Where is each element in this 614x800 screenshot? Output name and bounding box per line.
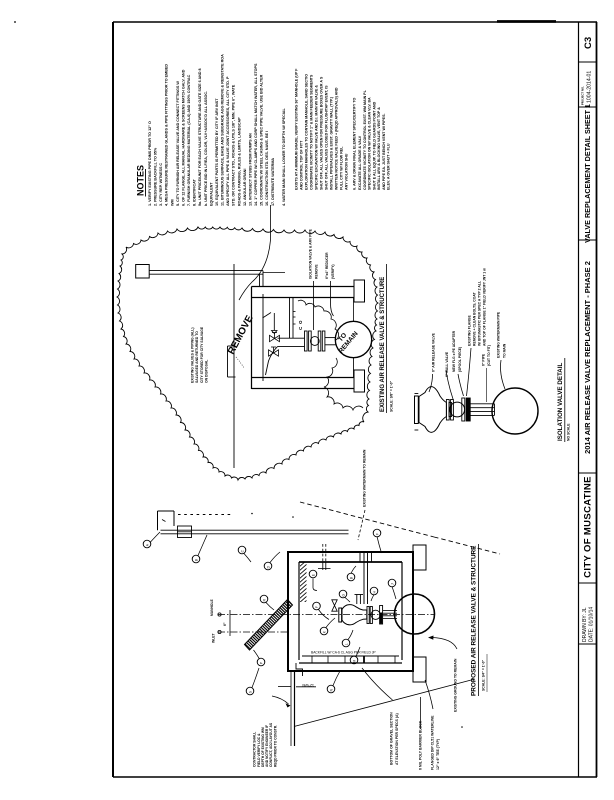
svg-text:F: F (375, 533, 379, 535)
svg-text:SHUT OFF, ALL VALVES CLOSED FO: SHUT OFF, ALL VALVES CLOSED FOR FLUSH/TA… (325, 85, 329, 190)
svg-text:TO MAIN: TO MAIN (503, 343, 507, 358)
svg-text:BOTTOM OF GRAVEL SECTION: BOTTOM OF GRAVEL SECTION (390, 712, 394, 765)
svg-text:11. BITUMINOUS SURFACE, BASE: 11. BITUMINOUS SURFACE, BASE AND SUBGRAD… (221, 54, 225, 206)
svg-text:J: J (390, 583, 394, 585)
svg-text:DATE: 01/10/14: DATE: 01/10/14 (588, 607, 594, 642)
svg-text:12" x 6" TEE (TYP): 12" x 6" TEE (TYP) (436, 739, 440, 770)
svg-text:(VERIFY): (VERIFY) (331, 264, 335, 279)
svg-text:2014 AIR RELEASE VALVE REPLACE: 2014 AIR RELEASE VALVE REPLACEMENT - PHA… (583, 261, 592, 454)
svg-text:C3: C3 (583, 37, 594, 49)
svg-text:INLET: INLET (212, 633, 216, 643)
svg-text:6" AIR RELEASE VALVE: 6" AIR RELEASE VALVE (432, 332, 436, 372)
svg-text:12"WM: 12"WM (302, 683, 314, 687)
svg-text:MANHOLE: MANHOLE (210, 599, 214, 616)
svg-text:P: P (259, 662, 263, 664)
svg-text:REMOVE + CLEAN BOLTS, COAT: REMOVE + CLEAN BOLTS, COAT (473, 291, 477, 346)
svg-text:6"x4" REDUCER: 6"x4" REDUCER (325, 252, 329, 279)
svg-text:C: C (298, 326, 303, 330)
svg-text:NOTES: NOTES (136, 165, 146, 196)
svg-text:(CUT TO FIT): (CUT TO FIT) (487, 345, 491, 366)
svg-text:NEW FLG x PE ADAPTER: NEW FLG x PE ADAPTER (452, 330, 456, 372)
svg-text:SHUT OFF, ALL VALVES OPEN FOR: SHUT OFF, ALL VALVES OPEN FOR PRESSURE B… (320, 76, 324, 190)
svg-text:EXPLORATION MANHOLES TO CONTAI: EXPLORATION MANHOLES TO CONTAIN MANHOLE,… (305, 74, 309, 190)
svg-text:b. UNIT PRICE BID IN LF/EA, C: b. UNIT PRICE BID IN LF/EA, COLOR, VLV+A… (204, 91, 208, 206)
svg-text:L: L (344, 643, 348, 645)
svg-text:SALVAGED AND RETURNED TO: SALVAGED AND RETURNED TO (195, 331, 199, 383)
svg-text:3. CITY REP. WITNESS C: 3. CITY REP. WITNESS C (159, 163, 163, 206)
svg-text:B: B (349, 577, 353, 579)
svg-text:REQD PRIOR TO CONSTR.: REQD PRIOR TO CONSTR. (273, 725, 277, 767)
svg-text:C: C (240, 549, 244, 552)
svg-text:COORDINATE VICINITY TO NOTIFY: COORDINATE VICINITY TO NOTIFY 1" & MAIN … (310, 74, 314, 190)
svg-text:WRITTEN NOTICE VALVE FEED + (R: WRITTEN NOTICE VALVE FEED + (REQD APPROV… (335, 87, 339, 190)
svg-text:6": 6" (223, 622, 227, 626)
svg-text:INSTALL ARV & BLOCKING VALVE,: INSTALL ARV & BLOCKING VALVE, VENT TOP & (377, 107, 381, 190)
svg-text:6. ARV & DRAIN FINAL ELEMENT: 6. ARV & DRAIN FINAL ELEMENT SPEC/CERTIF… (353, 97, 357, 190)
svg-text:H: H (372, 590, 376, 593)
svg-text:PROPOSED AIR RELEASE VALVE & S: PROPOSED AIR RELEASE VALVE & STRUCTURE (471, 545, 478, 696)
svg-text:SPECIFIC EXCAVATION W/ VALVE A: SPECIFIC EXCAVATION W/ VALVE AND D.I. MA… (315, 85, 319, 190)
svg-text:16. CONSTRUCTION STD. DES. NA: 16. CONSTRUCTION STD. DES. NAVE. BE I (265, 131, 269, 206)
svg-text:NO SCALE: NO SCALE (567, 423, 571, 441)
svg-text:D: D (266, 565, 270, 568)
svg-text:ON DISPOSAL: ON DISPOSAL (205, 360, 209, 383)
svg-text:4. MEGA PRESSURE RESTRAINED G: 4. MEGA PRESSURE RESTRAINED GLANDS & PIP… (165, 64, 169, 206)
svg-text:ISOLATION VALVE DETAIL: ISOLATION VALVE DETAIL (557, 363, 564, 441)
svg-text:INSTALL PIPE/VALVES & EXIST. G: INSTALL PIPE/VALVES & EXIST. GRAVITY WAL… (330, 96, 334, 190)
svg-text:8. IDENTIFICAT: 8. IDENTIFICAT (193, 178, 197, 206)
svg-text:STD. OR CONTRACT STD., ROADS &: STD. OR CONTRACT STD., ROADS & UTILS 1/8… (232, 84, 236, 206)
svg-text:9a. UNIT PRICE/UNIT FOR EACH: 9a. UNIT PRICE/UNIT FOR EACH VALVE STRUC… (198, 68, 202, 206)
svg-text:EXISTING FLANGE: EXISTING FLANGE (468, 315, 472, 346)
svg-text:13. INTERSECT STUBS FROM PUMP: 13. INTERSECT STUBS FROM PUMPS AN (248, 133, 252, 206)
svg-text:10. EQUIVALENT PARTS IS PERMI: 10. EQUIVALENT PARTS IS PERMITTED BY CIT… (215, 98, 219, 206)
svg-text:SCALE: 3/4" = 1'-0": SCALE: 3/4" = 1'-0" (482, 660, 486, 691)
svg-text:EXISTS AT A MINIMUM GRADE, VER: EXISTS AT A MINIMUM GRADE, VERIFY EXISTI… (295, 68, 299, 190)
svg-text:O: O (298, 320, 303, 324)
svg-text:BACKFILL W/ CA-6 CL AGG PER FI: BACKFILL W/ CA-6 CL AGG PER FIELD JP (311, 651, 376, 655)
svg-text:AND CONTROL TOP OF FITT: AND CONTROL TOP OF FITT (300, 140, 304, 190)
svg-text:EXISTING WATERMAIN PIPE: EXISTING WATERMAIN PIPE (497, 311, 501, 358)
svg-text:VALVE REPLACEMENT DETAIL SHEET: VALVE REPLACEMENT DETAIL SHEET 1 (583, 104, 592, 243)
svg-text:REMOVE: REMOVE (315, 264, 319, 279)
svg-text:B: B (194, 559, 198, 561)
svg-text:PROJECT NO.: PROJECT NO. (581, 86, 585, 105)
svg-text:15. COORDINATE W/ STEEL CASIN: 15. COORDINATE W/ STEEL CASING & SPEC PI… (260, 74, 264, 206)
svg-text:F: F (315, 606, 319, 608)
svg-text:12. ANGULAR GRANI: 12. ANGULAR GRANI (243, 169, 247, 206)
svg-text:4. WATER MAIN SHALL LOWER TO: 4. WATER MAIN SHALL LOWER TO DEPTH W/ SP… (282, 108, 286, 206)
svg-text:ISOLATION VALVE & ARV PIPE: ISOLATION VALVE & ARV PIPE (309, 228, 313, 279)
svg-text:5. CITY TO FURNISH AIR RELEAS: 5. CITY TO FURNISH AIR RELEASE VALVE AND… (176, 81, 180, 206)
svg-text:G: G (341, 593, 345, 596)
svg-text:E: E (311, 574, 315, 576)
svg-text:FULL CITY W/ FLOW REL: FULL CITY W/ FLOW REL (340, 146, 344, 190)
svg-text:14. 1" COPPER PIPE W/ CLAMPS: 14. 1" COPPER PIPE W/ CLAMPS AND CORP SH… (254, 63, 258, 206)
svg-text:K: K (322, 630, 326, 633)
svg-text:SHUT E ALL EQUIP. TO FIELD GUA: SHUT E ALL EQUIP. TO FIELD GUARDS POINT … (372, 101, 376, 190)
svg-text:EXISTING WATERMAIN TO REMAIN: EXISTING WATERMAIN TO REMAIN (363, 449, 367, 507)
svg-text:ELEV. A OVER SHUT + FLU: ELEV. A OVER SHUT + FLU (387, 143, 391, 190)
svg-text:1. VERIFY EXISTING PIPE DIMS: 1. VERIFY EXISTING PIPE DIMS PRIOR TO 12… (148, 121, 152, 206)
svg-text:6" BALL VALVE: 6" BALL VALVE (445, 351, 449, 377)
svg-text:SCALE: 3/8" = 1'-0": SCALE: 3/8" = 1'-0" (390, 381, 394, 412)
svg-text:EXCAVATE ALL GRADE & VALV: EXCAVATE ALL GRADE & VALV (358, 135, 362, 190)
svg-text:WM: WM (170, 199, 174, 206)
svg-text:N: N (329, 688, 333, 691)
svg-text:6" PIPE: 6" PIPE (482, 353, 486, 366)
svg-text:ROADS & PARKING, RULES & LIMI: ROADS & PARKING, RULES & LIMITS, LANDSCA… (237, 117, 241, 206)
svg-text:CITY OF MUSCATINE: CITY OF MUSCATINE (583, 476, 594, 578)
svg-text:W/ BITUMASTIC PER SPEC A TYP 2: W/ BITUMASTIC PER SPEC A TYP 2 ALL (478, 281, 482, 346)
svg-text:17. DISTRIBUTE WATERMA: 17. DISTRIBUTE WATERMA (271, 158, 275, 206)
svg-text:EXISTING VALVES & PIPING (ALL): EXISTING VALVES & PIPING (ALL) (191, 328, 195, 383)
svg-text:EXISTING AIR RELEASE VALVE & S: EXISTING AIR RELEASE VALVE & STRUCTURE (380, 277, 386, 412)
svg-text:S: S (248, 691, 252, 693)
svg-text:DRAWN BY: JL: DRAWN BY: JL (582, 607, 588, 642)
svg-text:AND TOP OF FLANGE 1" FIELD VER: AND TOP OF FLANGE 1" FIELD VERIFY JNT 1 … (483, 268, 487, 346)
svg-text:6. OF 12 FLANGE, ALL MANUAL H: 6. OF 12 FLANGE, ALL MANUAL HARDWARE & S… (181, 69, 185, 206)
svg-text:1004-2014-01: 1004-2014-01 (587, 71, 593, 103)
svg-text:A: A (145, 543, 149, 546)
svg-text:7. FURNISH GRANULAR BEDDING M: 7. FURNISH GRANULAR BEDDING MATERIAL (CA… (187, 74, 191, 206)
svg-text:EQUIVALENT: EQUIVALENT (209, 182, 213, 206)
svg-text:AND PIPE EA. JUST BENCH VENT W: AND PIPE EA. JUST BENCH VENT W/ PIPES. (382, 114, 386, 190)
svg-text:(SPOOL PIECE): (SPOOL PIECE) (458, 347, 462, 372)
svg-text:AND SPECIFY ALL PIPE & VALVE J: AND SPECIFY ALL PIPE & VALVE JOINT ACCES… (226, 76, 230, 206)
svg-text:COORDINATE VICINITY TO CONTROL: COORDINATE VICINITY TO CONTROL EXIST. WM… (363, 89, 367, 190)
svg-text:SPECIFIC ISOLATION ON W/ VALVE: SPECIFIC ISOLATION ON W/ VALVE & CLEAN V… (368, 97, 372, 190)
svg-text:M: M (352, 660, 356, 663)
svg-text:AT ELEVATION PER SPECS (A): AT ELEVATION PER SPECS (A) (395, 713, 399, 765)
svg-text:EXISTING GROUND TO REMAIN: EXISTING GROUND TO REMAIN (454, 658, 458, 712)
svg-text:R: R (262, 598, 266, 601)
svg-text:ANY VIOLATION SHU: ANY VIOLATION SHU (345, 153, 349, 190)
svg-text:2. PRESSURE BACKFILL TO 95%: 2. PRESSURE BACKFILL TO 95% (154, 147, 158, 206)
svg-text:FLANGED DIP CL51 WATERLINE: FLANGED DIP CL51 WATERLINE (431, 715, 435, 770)
svg-text:CITY STORED FOR CITY SALVAGE: CITY STORED FOR CITY SALVAGE (200, 326, 204, 383)
